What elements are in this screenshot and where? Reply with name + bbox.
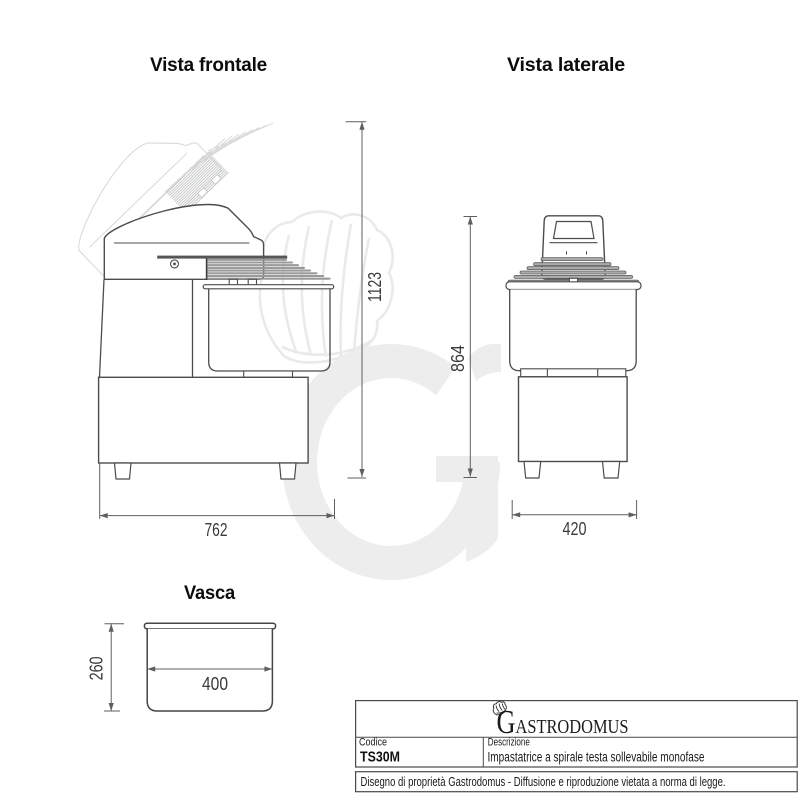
svg-text:TS30M: TS30M <box>360 750 400 766</box>
svg-text:Impastatrice a spirale testa s: Impastatrice a spirale testa sollevabile… <box>488 750 705 765</box>
svg-text:ASTRODOMUS: ASTRODOMUS <box>516 716 629 738</box>
svg-text:Vista frontale: Vista frontale <box>150 55 267 76</box>
svg-text:G: G <box>497 704 516 741</box>
svg-text:420: 420 <box>563 519 587 539</box>
svg-text:400: 400 <box>202 674 228 694</box>
svg-text:260: 260 <box>86 656 106 680</box>
svg-text:Codice: Codice <box>359 737 387 749</box>
svg-text:Vista laterale: Vista laterale <box>507 55 625 76</box>
svg-text:Vasca: Vasca <box>184 583 236 604</box>
svg-text:Descrizione: Descrizione <box>488 737 530 749</box>
svg-text:762: 762 <box>205 520 228 540</box>
svg-text:Disegno di proprietà Gastrodom: Disegno di proprietà Gastrodomus - Diffu… <box>361 774 726 789</box>
svg-text:1123: 1123 <box>365 272 385 302</box>
svg-text:864: 864 <box>448 345 468 372</box>
